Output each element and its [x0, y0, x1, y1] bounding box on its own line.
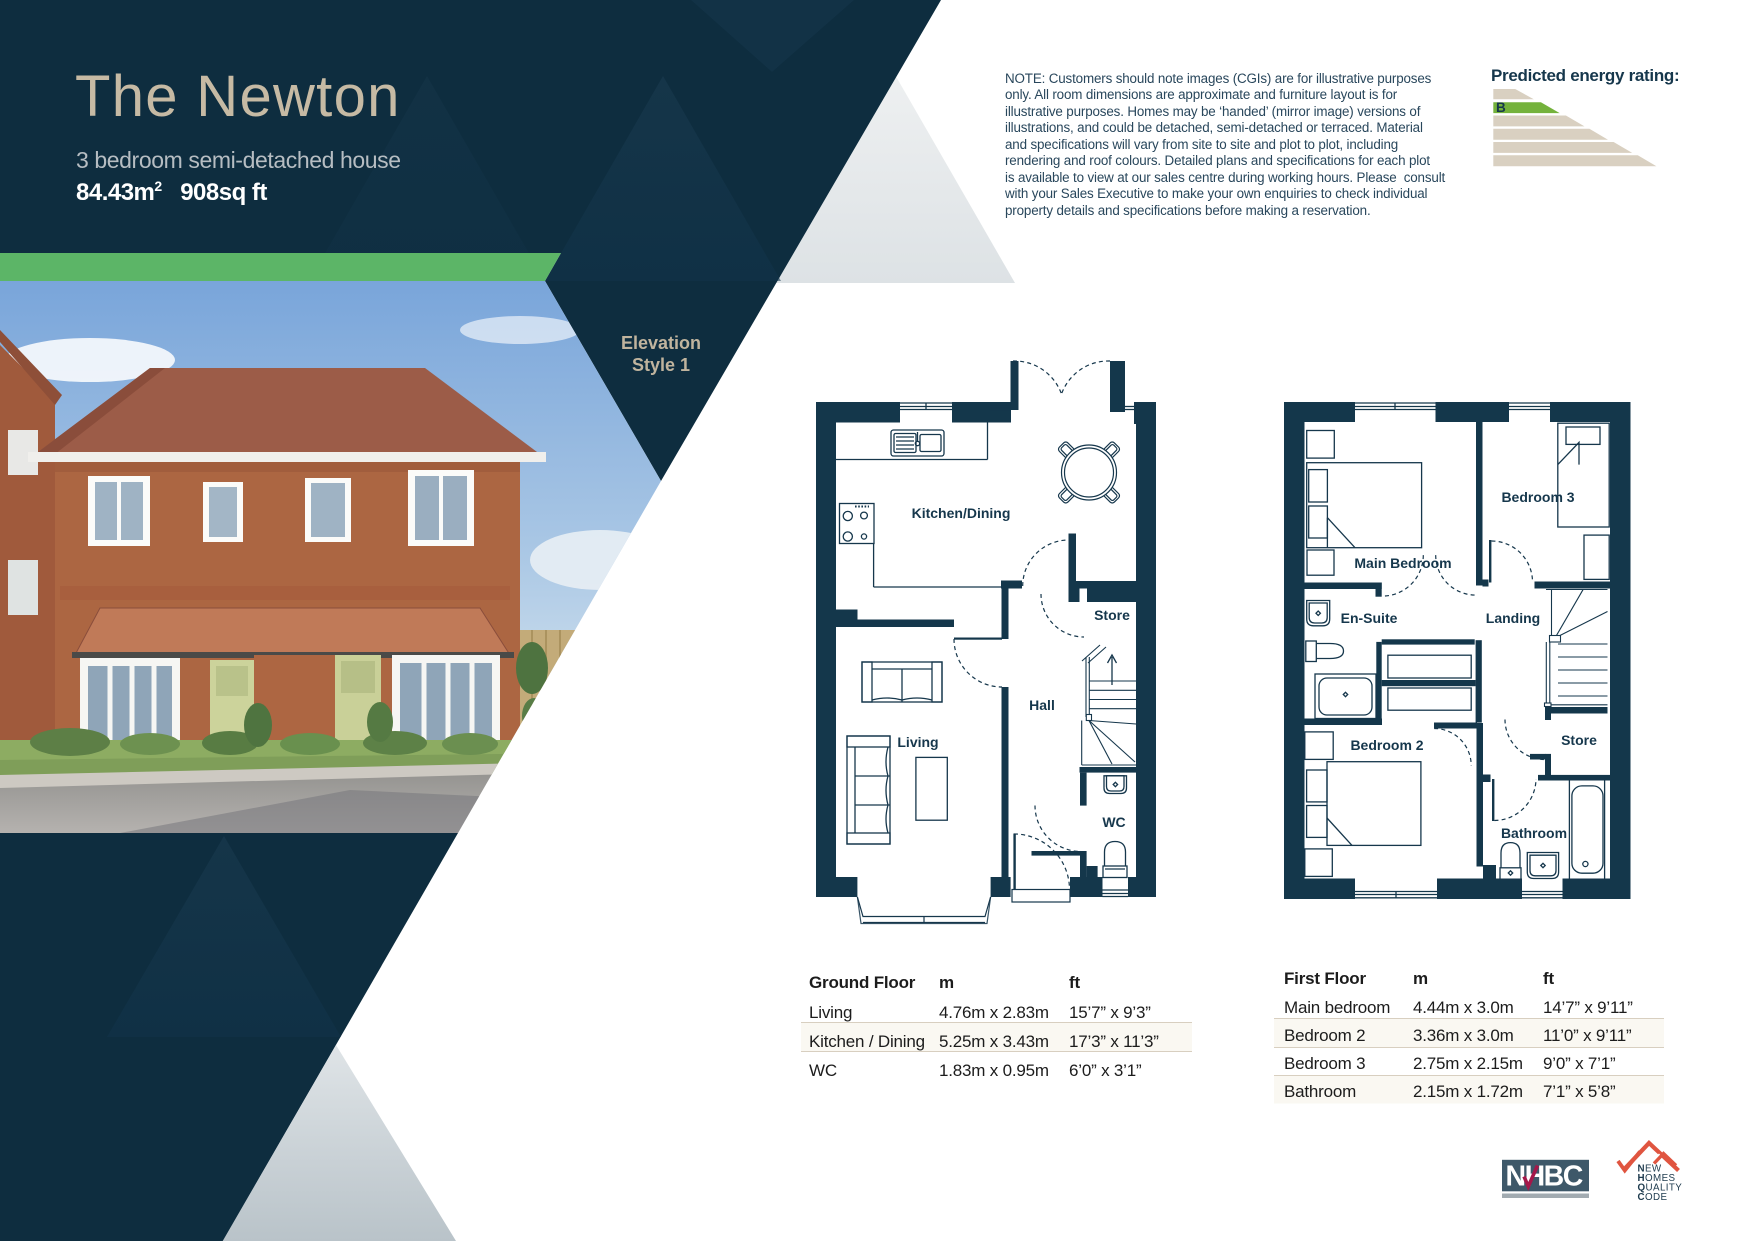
svg-text:NHBC: NHBC [1506, 1161, 1583, 1193]
svg-text:B: B [1496, 100, 1506, 115]
svg-text:CODE: CODE [1638, 1192, 1668, 1203]
